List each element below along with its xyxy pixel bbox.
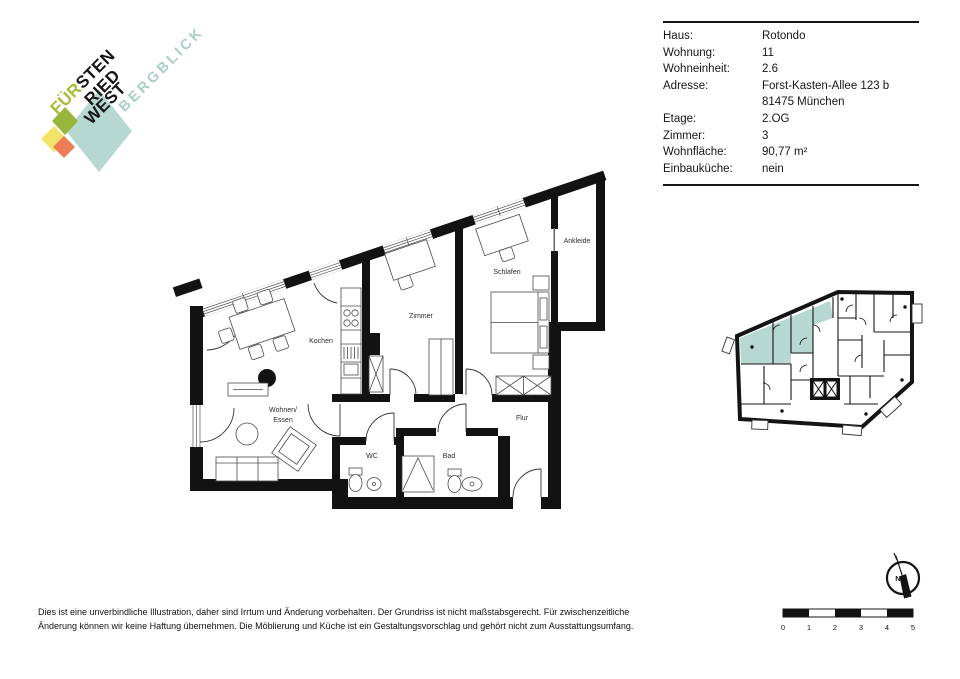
info-row-wohnung: Wohnung: 11 xyxy=(663,45,919,62)
scale-bar: 0 1 2 3 4 5 xyxy=(781,609,915,632)
nightstand xyxy=(533,355,549,369)
info-value: nein xyxy=(762,161,919,178)
info-row-zimmer: Zimmer: 3 xyxy=(663,128,919,145)
scale-tick-label: 5 xyxy=(911,623,915,632)
info-label: Wohneinheit: xyxy=(663,61,762,78)
info-value: 81475 München xyxy=(762,94,919,111)
info-value: Rotondo xyxy=(762,28,919,45)
info-row-einbaukueche: Einbauküche: nein xyxy=(663,161,919,178)
info-row-etage: Etage: 2.OG xyxy=(663,111,919,128)
shaft xyxy=(366,333,380,355)
door-zimmer xyxy=(390,369,416,395)
door-schlafen xyxy=(466,369,492,395)
washbasin xyxy=(462,477,482,491)
toilet xyxy=(349,468,362,492)
info-row-wohnflaeche: Wohnfläche: 90,77 m² xyxy=(663,144,919,161)
room-label-bad: Bad xyxy=(443,453,456,460)
info-value: 11 xyxy=(762,45,919,62)
room-label-essen: Essen xyxy=(273,417,293,424)
duct-box xyxy=(369,356,383,392)
room-label-zimmer: Zimmer xyxy=(409,313,433,320)
round-table xyxy=(236,423,258,445)
desk-schlafen xyxy=(476,214,532,267)
window xyxy=(190,405,203,447)
scale-tick-label: 3 xyxy=(859,623,863,632)
info-value: Forst-Kasten-Allee 123 b xyxy=(762,78,919,95)
door-bad xyxy=(438,404,466,432)
kitchen-counter xyxy=(341,288,361,394)
info-label: Wohnfläche: xyxy=(663,144,762,161)
window xyxy=(309,260,343,280)
door-entrance xyxy=(513,469,541,497)
scale-segment xyxy=(783,609,809,617)
info-value: 90,77 m² xyxy=(762,144,919,161)
info-row-haus: Haus: Rotondo xyxy=(663,28,919,45)
room-label-schlafen: Schlafen xyxy=(493,269,520,276)
wardrobe-zimmer xyxy=(429,339,453,395)
room-label-kochen: Kochen xyxy=(309,338,333,345)
info-row-adresse-2: 81475 München xyxy=(663,94,919,111)
info-label: Etage: xyxy=(663,111,762,128)
info-label: Haus: xyxy=(663,28,762,45)
info-label: Wohnung: xyxy=(663,45,762,62)
info-row-wohneinheit: Wohneinheit: 2.6 xyxy=(663,61,919,78)
door-window-kitchen xyxy=(314,283,337,303)
room-label-wc: WC xyxy=(366,453,378,460)
disclaimer-line2: Änderung können wir keine Haftung überne… xyxy=(38,620,703,634)
room-label-flur: Flur xyxy=(516,415,529,422)
room-label-ankleide: Ankleide xyxy=(564,238,591,245)
scale-segment xyxy=(887,609,913,617)
nightstand xyxy=(533,276,549,290)
door-wc xyxy=(366,413,394,441)
scale-tick-label: 4 xyxy=(885,623,889,632)
info-label xyxy=(663,94,762,111)
scale-tick-label: 0 xyxy=(781,623,785,632)
sofa xyxy=(216,457,278,481)
sink xyxy=(344,364,358,375)
info-value: 2.6 xyxy=(762,61,919,78)
facade-spur xyxy=(173,279,203,297)
overview-plan xyxy=(722,292,922,436)
sideboard xyxy=(228,383,268,396)
scale-segment xyxy=(835,609,861,617)
compass: N xyxy=(887,553,919,599)
compass-north-label: N xyxy=(895,574,900,583)
info-label: Zimmer: xyxy=(663,128,762,145)
scale-tick-label: 2 xyxy=(833,623,837,632)
door-terrace xyxy=(200,408,234,442)
armchair xyxy=(272,427,317,472)
toilet xyxy=(448,469,461,493)
scale-tick-label: 1 xyxy=(807,623,811,632)
disclaimer-line1: Dies ist eine unverbindliche Illustratio… xyxy=(38,606,703,620)
double-bed xyxy=(491,292,549,353)
info-value: 2.OG xyxy=(762,111,919,128)
info-label: Adresse: xyxy=(663,78,762,95)
floor-plan: Kochen Wohnen/ Essen Zimmer Schlafen Ank… xyxy=(173,171,607,509)
sliding-door xyxy=(554,228,556,251)
shower xyxy=(402,456,434,492)
wardrobe-schlafen xyxy=(496,376,551,395)
info-row-adresse: Adresse: Forst-Kasten-Allee 123 b xyxy=(663,78,919,95)
info-label: Einbauküche: xyxy=(663,161,762,178)
washbasin xyxy=(367,478,381,491)
room-label-wohnen: Wohnen/ xyxy=(269,407,297,414)
disclaimer: Dies ist eine unverbindliche Illustratio… xyxy=(38,606,703,633)
info-value: 3 xyxy=(762,128,919,145)
overview-core xyxy=(810,378,840,400)
info-panel: Haus: Rotondo Wohnung: 11 Wohneinheit: 2… xyxy=(663,21,919,186)
door-living-passage xyxy=(308,404,340,436)
